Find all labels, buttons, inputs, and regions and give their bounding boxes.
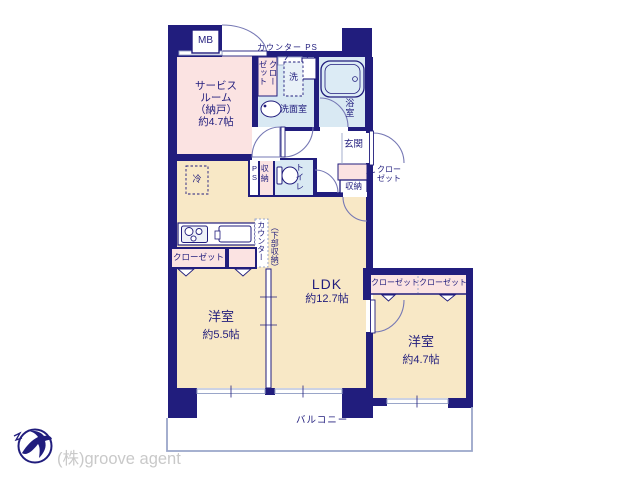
mb-label: MB [192,35,219,47]
company-logo [14,430,52,463]
bathtub-icon [321,61,364,97]
ps-box-top [302,58,316,79]
partition-line [266,269,271,388]
toilet-label: トイレ [294,163,304,195]
closet55-right [229,249,255,267]
balcony-outline [167,407,472,451]
floor-plan-drawing [0,0,640,480]
ldk-door-opening [343,192,367,197]
floor-plan: MB カウンター PS サービス ルーム （納戸） 約4.7帖 クローゼット 洗… [0,0,640,480]
door-leaf-bedroom47 [371,300,376,333]
service-room-label: サービス ルーム （納戸） 約4.7帖 [186,80,246,128]
ldk-size: 約12.7帖 [283,293,371,306]
washbasin-icon [261,101,281,117]
door-arc-front-door [373,133,404,163]
service-room-line3: （納戸） [186,104,246,116]
wall-bedroom47-top [363,268,473,275]
fridge-label: 冷 [186,174,208,184]
counter-label: カウンター [257,221,266,267]
storage-label: 収納 [260,164,269,194]
closet47-left-label: クローゼット [371,278,418,287]
wall-bottom-mid-block [342,388,373,418]
stove-icon [182,226,208,243]
service-room-line4: 約4.7帖 [186,116,246,128]
wall-bedroom47-bottom-stub [373,398,387,406]
wall-bottom-left-block [168,388,197,418]
bedroom55-size: 約5.5帖 [189,329,253,342]
entrance-label: 玄関 [344,140,363,151]
wall-top-right-block [342,28,372,57]
door-arc-washroom [283,127,313,157]
wall-bedroom47-right [466,268,473,403]
wall-bottom-pier [265,388,275,395]
bath-door-opening [320,127,348,131]
under-counter-storage-label: （下部収納） [270,223,279,275]
washroom-label: 洗面室 [280,104,307,114]
bedroom47-size: 約4.7帖 [390,354,452,367]
closet55-label: クローゼット [172,253,225,263]
wall-bath-right [365,57,373,127]
window-bedroom47 [387,399,448,404]
entrance-closet-label: クローゼット [377,165,404,183]
closet-wet-label: クローゼット [258,60,278,92]
door-arc-service-room [252,127,280,157]
window-ldk [275,389,342,394]
wall-right-3 [366,195,373,275]
wall-hall-bottom [317,192,343,197]
wall-service-bottom [168,154,252,161]
entrance-closet [338,164,367,180]
balcony-label: バルコニー [296,416,348,427]
bedroom47-name: 洋室 [396,335,446,350]
ldk-name: LDK [297,276,357,292]
washbasin-faucet [264,105,267,108]
wall-bottom-right-block [448,398,473,408]
washer-label: 洗 [284,72,303,82]
sink-icon [215,226,251,242]
service-room-line1: サービス [186,80,246,92]
door-leaf-washroom [281,127,285,157]
bedroom55-name: 洋室 [196,310,246,325]
counter-ps-label: カウンター PS [257,43,318,52]
wall-bedroom47-left-2 [366,332,373,388]
service-room-line2: ルーム [186,92,246,104]
ps-label: PS [250,164,258,182]
entrance-storage-label: 収納 [341,182,366,192]
closet47-right-label: クローゼット [419,278,466,287]
bathroom-label: 浴室 [344,98,354,126]
wall-left [168,25,177,390]
door-leaf-front [370,131,374,165]
company-name: (株)groove agent [57,450,181,469]
